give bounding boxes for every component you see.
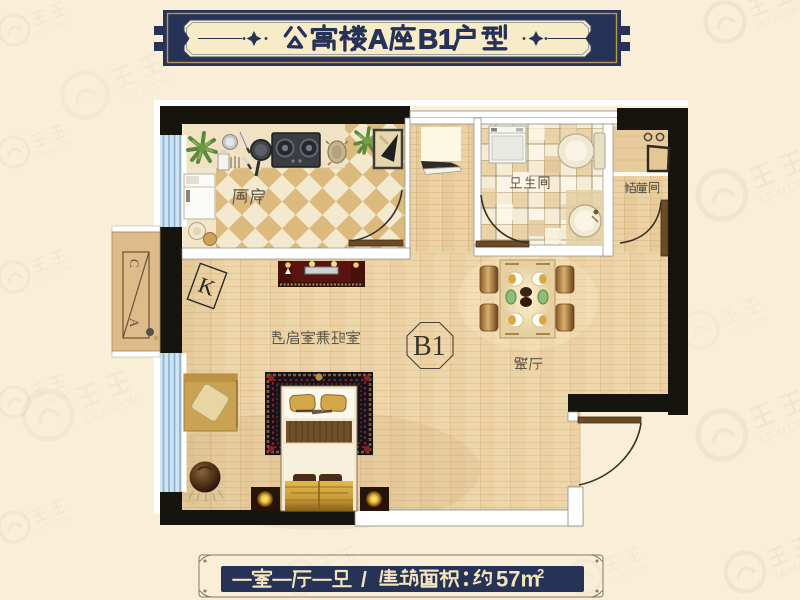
svg-text:57m: 57m: [496, 567, 540, 592]
svg-text:A: A: [368, 24, 388, 55]
svg-text:B1: B1: [413, 331, 446, 362]
svg-text:C: C: [127, 259, 142, 268]
svg-text:2: 2: [537, 566, 544, 581]
svg-text:B1: B1: [418, 24, 454, 55]
svg-text:A: A: [127, 318, 142, 328]
svg-text:/: /: [361, 569, 367, 592]
